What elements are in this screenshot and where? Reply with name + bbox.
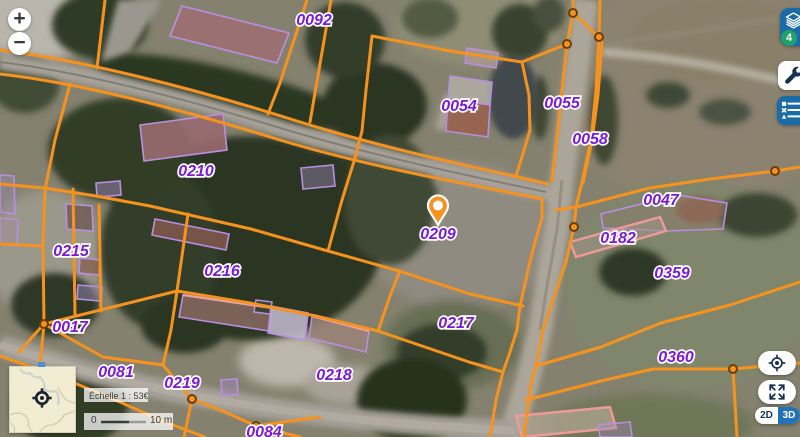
svg-text:0047: 0047 xyxy=(643,192,680,209)
svg-text:0360: 0360 xyxy=(658,349,694,366)
svg-text:0092: 0092 xyxy=(296,12,332,29)
svg-text:0209: 0209 xyxy=(420,226,456,243)
svg-text:0216: 0216 xyxy=(204,263,240,280)
svg-text:0055: 0055 xyxy=(544,95,581,112)
svg-text:0054: 0054 xyxy=(441,98,477,115)
svg-text:0218: 0218 xyxy=(316,367,352,384)
svg-text:0017: 0017 xyxy=(52,319,89,336)
svg-text:0182: 0182 xyxy=(600,230,636,247)
svg-text:0359: 0359 xyxy=(654,265,690,282)
svg-text:0081: 0081 xyxy=(98,364,134,381)
svg-text:0084: 0084 xyxy=(246,424,282,437)
svg-text:0219: 0219 xyxy=(164,375,200,392)
svg-text:0217: 0217 xyxy=(438,315,475,332)
svg-text:0058: 0058 xyxy=(572,131,608,148)
svg-text:0210: 0210 xyxy=(178,163,214,180)
svg-text:0215: 0215 xyxy=(53,243,90,260)
